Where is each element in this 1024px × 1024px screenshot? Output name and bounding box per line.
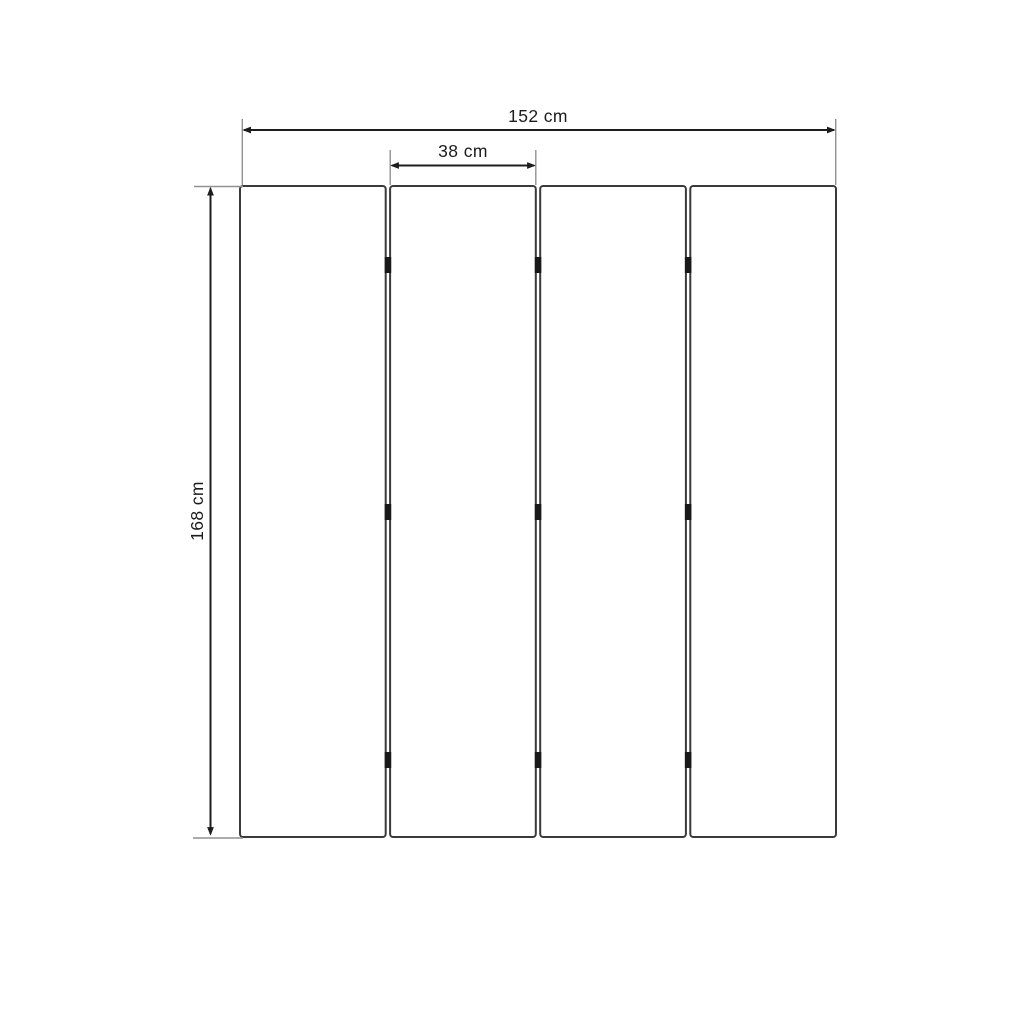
- height-label: 168 cm: [187, 481, 207, 541]
- hinge: [535, 752, 542, 768]
- panel-3: [540, 186, 686, 837]
- arrow-right-icon: [827, 127, 836, 134]
- hinge: [385, 752, 392, 768]
- folding-screen-dimension-diagram: 152 cm 38 cm 168 cm: [0, 0, 1024, 1024]
- arrow-down-icon: [207, 827, 214, 836]
- arrow-left-icon: [242, 127, 251, 134]
- hinge: [385, 257, 392, 273]
- arrow-left-icon: [390, 162, 399, 169]
- total-width-dimension: 152 cm: [242, 106, 835, 133]
- panel-1: [240, 186, 386, 837]
- arrow-right-icon: [527, 162, 536, 169]
- hinge: [685, 257, 692, 273]
- arrow-up-icon: [207, 187, 214, 196]
- height-dimension: 168 cm: [187, 187, 214, 836]
- hinge: [535, 257, 542, 273]
- dimension-drawing-page: 152 cm 38 cm 168 cm: [0, 0, 1024, 1024]
- panel-width-label: 38 cm: [438, 141, 488, 161]
- panel-4: [690, 186, 836, 837]
- total-width-label: 152 cm: [508, 106, 568, 126]
- hinge: [685, 504, 692, 520]
- hinge: [535, 504, 542, 520]
- panel-width-dimension: 38 cm: [390, 141, 536, 169]
- panel-2: [390, 186, 536, 837]
- hinge: [385, 504, 392, 520]
- hinge: [685, 752, 692, 768]
